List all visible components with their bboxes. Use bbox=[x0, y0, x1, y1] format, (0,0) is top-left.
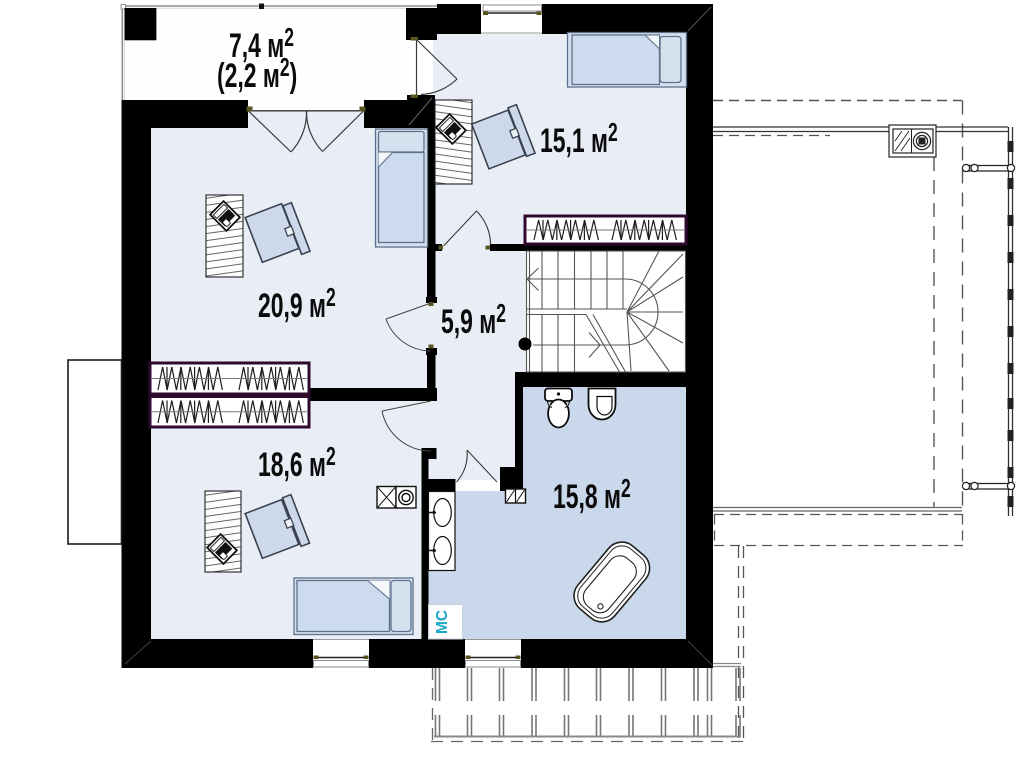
svg-text:20,9 м2: 20,9 м2 bbox=[258, 283, 336, 326]
svg-text:15,1 м2: 15,1 м2 bbox=[540, 118, 618, 161]
svg-text:18,6 м2: 18,6 м2 bbox=[258, 442, 336, 485]
svg-text:15,8 м2: 15,8 м2 bbox=[553, 474, 631, 517]
svg-text:МС: МС bbox=[434, 610, 451, 634]
